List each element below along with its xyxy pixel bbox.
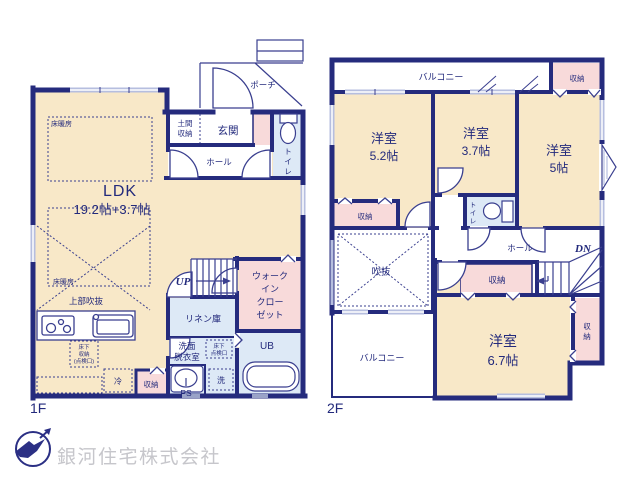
entrance-closet <box>253 114 270 145</box>
underfloor-hatch-line-1: 床下 <box>213 342 225 350</box>
pipe-space-label: PS <box>180 388 192 398</box>
kitchen-icons <box>37 311 135 340</box>
underfloor-storage-line-3: (点検口) <box>74 357 94 365</box>
room37-name: 洋室 <box>463 126 489 141</box>
toilet-1f-bowl <box>281 123 296 144</box>
doma-label-2: 収納 <box>178 128 193 138</box>
toilet-1f-tank <box>280 114 297 123</box>
toilet-1f-char-2: イ <box>284 157 292 166</box>
void-label: 吹抜 <box>371 266 391 278</box>
toilet-2f-door <box>468 228 490 250</box>
sink-basin <box>97 320 129 334</box>
storage-2f-right-char-2: 納 <box>583 331 591 341</box>
underfloor-storage-line-2: 収納 <box>78 350 90 358</box>
entrance-door <box>213 68 253 108</box>
hall-1f-label: ホール <box>206 157 232 167</box>
storage-1f-label: 収納 <box>144 379 159 389</box>
wic-line-3: クロー <box>256 297 283 307</box>
toilet-2f-char-2: イ <box>470 210 477 217</box>
stairs-1f-treads <box>197 259 233 297</box>
laundry-label: 洗 <box>217 375 225 385</box>
balcony-top-label: バルコニー <box>419 72 464 82</box>
company-name: 銀河住宅株式会社 <box>57 446 221 468</box>
bay-window <box>599 144 616 191</box>
toilet-2f-bowl <box>484 203 501 219</box>
upper-void-label: 上部吹抜 <box>69 296 104 306</box>
stairs-2f-fan <box>569 250 602 295</box>
entrance-label: 玄関 <box>218 124 239 137</box>
company-footer: 銀河住宅株式会社 <box>15 428 221 468</box>
wic-line-1: ウォーク <box>252 271 288 281</box>
storage-2f-left-label: 収納 <box>358 211 373 221</box>
room67-name: 洋室 <box>489 333 517 349</box>
storage-2f-center-label: 収納 <box>488 275 505 285</box>
stairs-2f <box>536 247 602 295</box>
fridge-label: 冷 <box>114 376 122 386</box>
washroom-line-1: 洗面 <box>178 341 196 351</box>
toilet-2f-tank <box>502 201 513 222</box>
room52-name: 洋室 <box>371 131 397 146</box>
toilet-2f-char-3: レ <box>470 218 477 225</box>
room-52 <box>334 94 433 200</box>
burner-small <box>59 320 64 325</box>
floor-heating-label-1: 床暖房 <box>51 119 72 128</box>
room52-size: 5.2帖 <box>370 148 399 163</box>
unit-bath-label: UB <box>260 341 274 352</box>
porch-label: ポーチ <box>250 80 276 90</box>
burner-large <box>47 324 56 333</box>
storage-2f-right-char-1: 収 <box>583 322 591 331</box>
wic-line-2: イン <box>261 284 279 294</box>
room5-size: 5帖 <box>550 160 569 175</box>
toilet-1f-char-3: レ <box>284 167 292 176</box>
room37-size: 3.7帖 <box>462 143 491 158</box>
toilet-2f-char-1: ト <box>470 202 477 209</box>
stairs-up-label: UP <box>176 276 191 288</box>
floor-heating-label-2: 床暖房 <box>53 277 74 286</box>
burner-medium <box>64 326 71 333</box>
faucet-icon <box>94 315 99 320</box>
room5-name: 洋室 <box>546 143 572 158</box>
floor1-title: 1F <box>30 400 46 416</box>
toilet-1f-char-1: ト <box>284 147 292 156</box>
floor2-title: 2F <box>327 400 343 416</box>
bathtub-inner <box>247 366 295 387</box>
ldk-label: LDK <box>103 183 137 200</box>
underfloor-hatch-line-2: 点検口 <box>211 349 228 357</box>
stairs-2f-top-edge <box>537 247 602 262</box>
storage-2f-top-right-label: 収納 <box>570 73 585 83</box>
wic-line-4: ゼット <box>256 309 283 320</box>
linen-label: リネン庫 <box>185 313 221 324</box>
underfloor-storage-line-1: 床下 <box>78 343 90 351</box>
floor-plan-canvas: LDK 19.2帖+3.7帖 床暖房 床暖房 上部吹抜 土間 収納 玄関 ホール… <box>0 0 640 480</box>
balcony-bottom-label: バルコニー <box>360 353 405 363</box>
room67-size: 6.7帖 <box>487 353 518 368</box>
doma-label-1: 土間 <box>178 118 193 128</box>
washroom-line-2: 脱衣室 <box>174 352 200 362</box>
stairs-down-label: DN <box>574 243 592 255</box>
ldk-size-label: 19.2帖+3.7帖 <box>74 202 151 217</box>
hall-2f-label: ホール <box>507 243 533 253</box>
